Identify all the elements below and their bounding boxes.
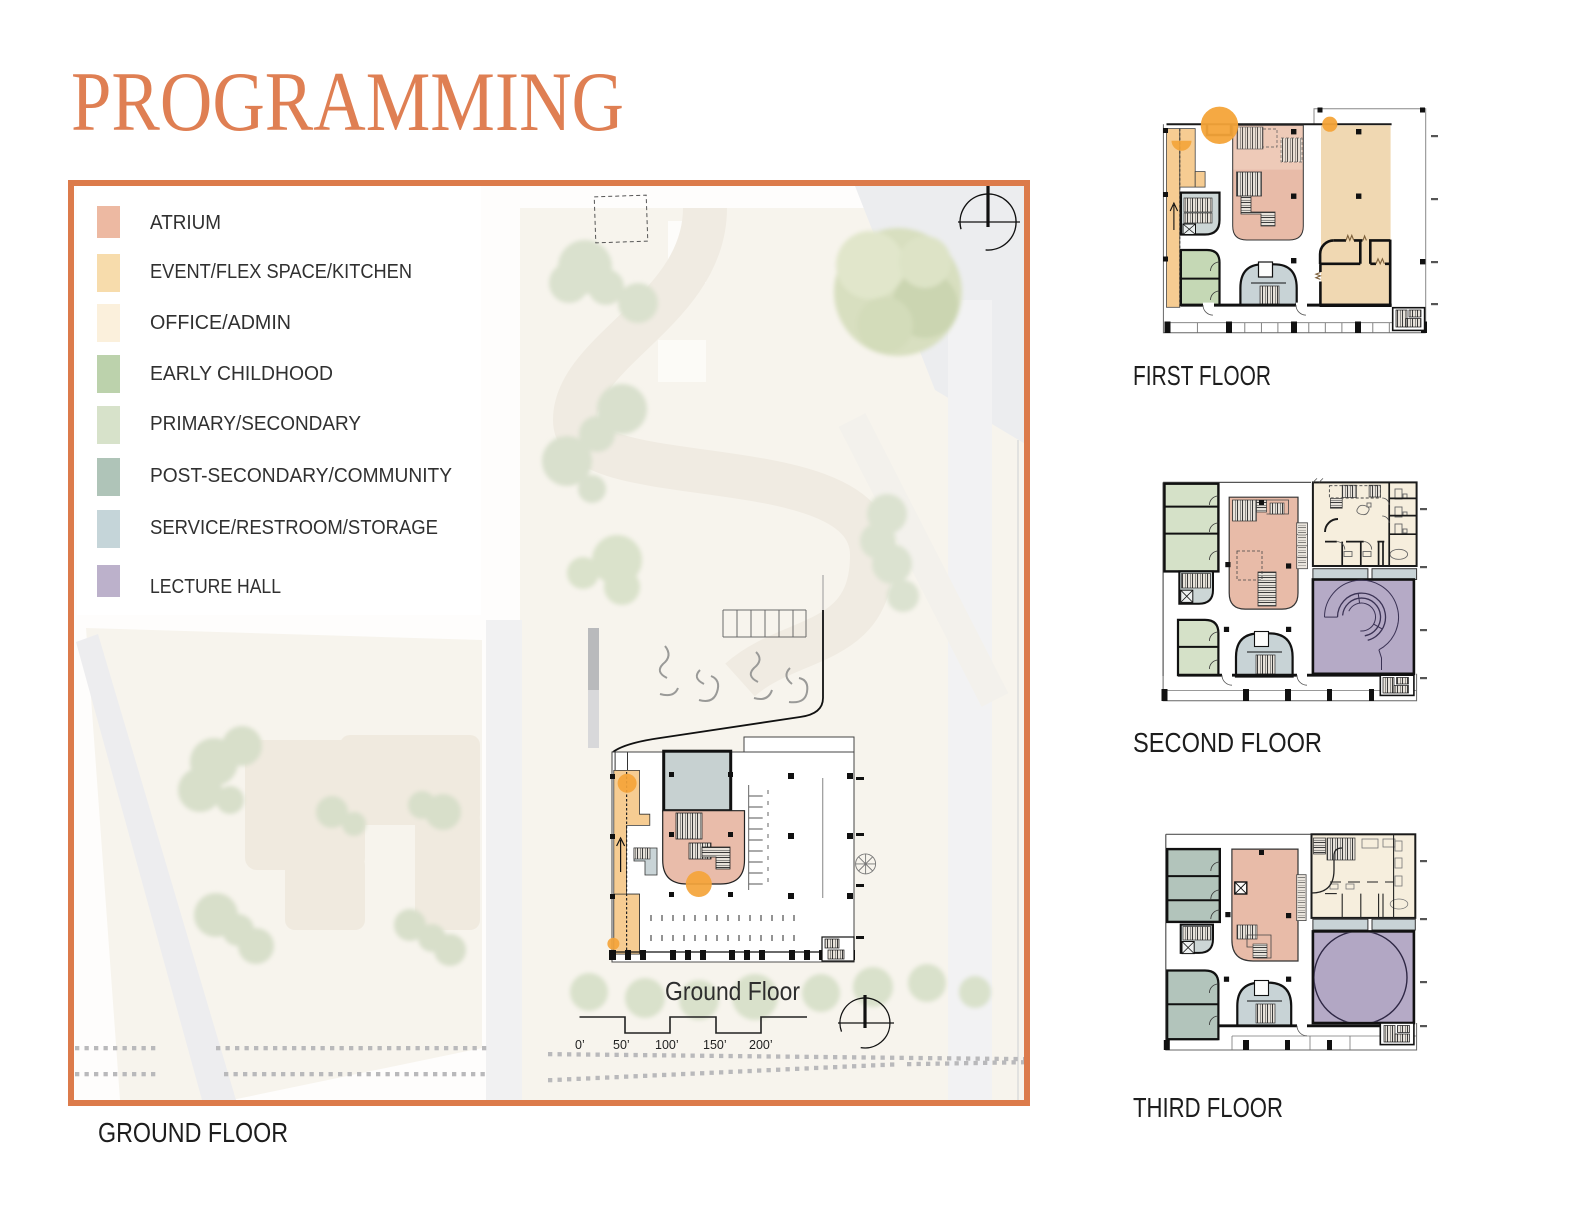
svg-text:200’: 200’: [749, 1038, 773, 1052]
svg-text:LECTURE HALL: LECTURE HALL: [150, 576, 281, 598]
svg-text:ATRIUM: ATRIUM: [150, 212, 221, 234]
svg-text:FIRST FLOOR: FIRST FLOOR: [1133, 360, 1271, 391]
svg-text:100’: 100’: [655, 1038, 679, 1052]
svg-text:EARLY CHILDHOOD: EARLY CHILDHOOD: [150, 363, 333, 385]
svg-text:OFFICE/ADMIN: OFFICE/ADMIN: [150, 312, 291, 334]
svg-text:THIRD FLOOR: THIRD FLOOR: [1133, 1092, 1283, 1123]
svg-text:150’: 150’: [703, 1038, 727, 1052]
svg-text:Ground Floor: Ground Floor: [665, 976, 800, 1006]
svg-text:0’: 0’: [575, 1038, 585, 1052]
svg-text:POST-SECONDARY/COMMUNITY: POST-SECONDARY/COMMUNITY: [150, 465, 452, 487]
svg-text:SECOND FLOOR: SECOND FLOOR: [1133, 727, 1322, 758]
svg-text:50’: 50’: [613, 1038, 630, 1052]
svg-text:PROGRAMMING: PROGRAMMING: [71, 55, 624, 149]
svg-text:SERVICE/RESTROOM/STORAGE: SERVICE/RESTROOM/STORAGE: [150, 517, 438, 539]
svg-text:EVENT/FLEX SPACE/KITCHEN: EVENT/FLEX SPACE/KITCHEN: [150, 261, 412, 283]
svg-text:PRIMARY/SECONDARY: PRIMARY/SECONDARY: [150, 413, 361, 435]
svg-text:GROUND FLOOR: GROUND FLOOR: [98, 1117, 288, 1148]
